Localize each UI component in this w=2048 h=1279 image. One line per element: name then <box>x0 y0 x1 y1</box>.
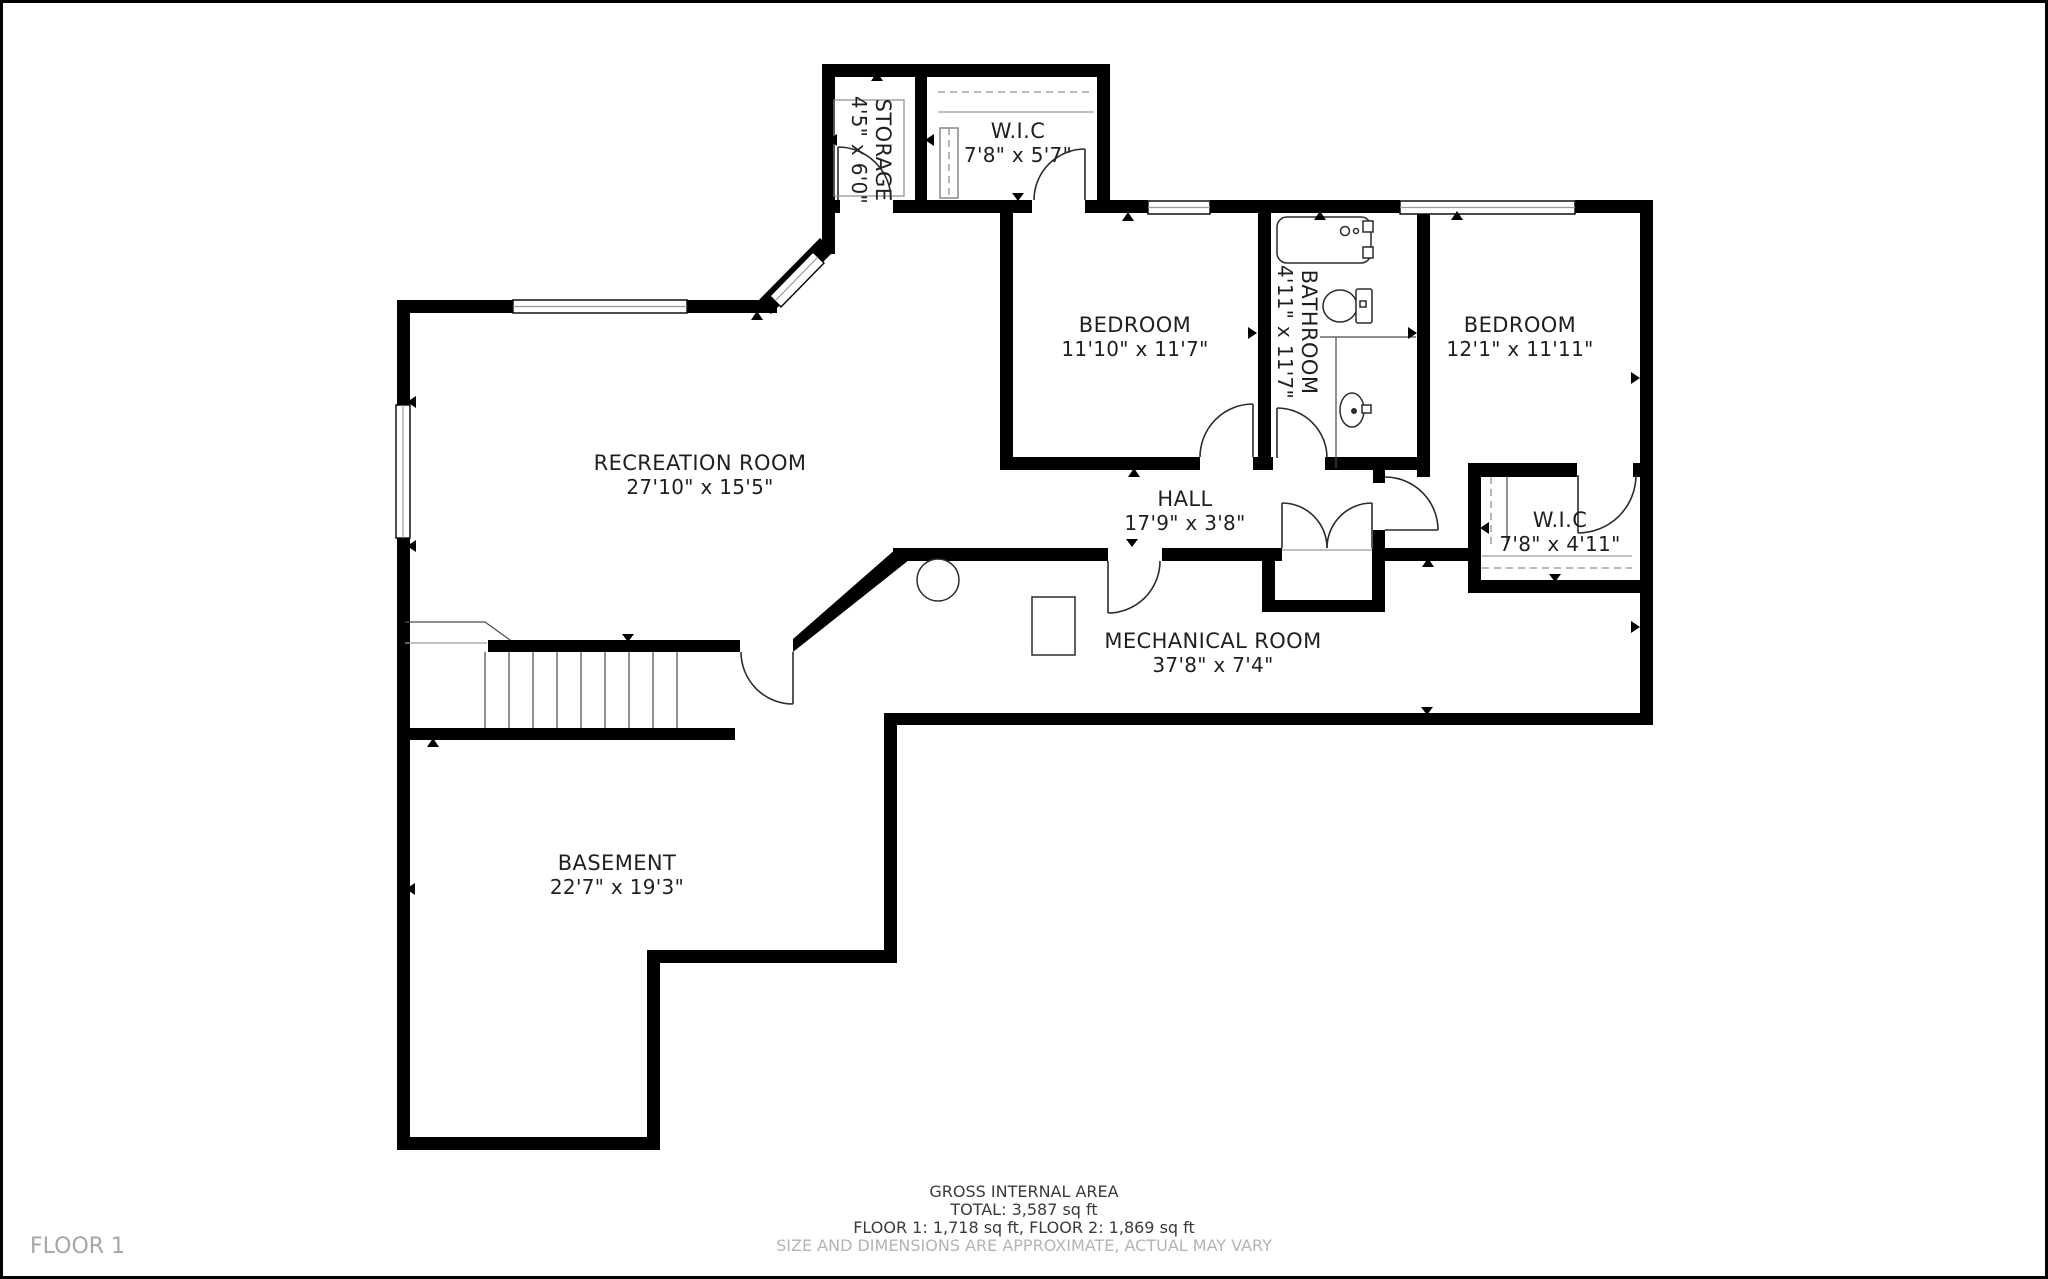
room-label-mechanical: MECHANICAL ROOM 37'8" x 7'4" <box>1104 629 1321 677</box>
wic-upper-cabinet <box>940 128 958 198</box>
wic-upper-name: W.I.C <box>991 119 1046 143</box>
room-label-bedroom2: BEDROOM 12'1" x 11'11" <box>1446 313 1593 361</box>
room-label-wic-upper: W.I.C 7'8" x 5'7" <box>964 119 1072 167</box>
double-door-hall <box>1282 503 1372 550</box>
hall-dims: 17'9" x 3'8" <box>1124 511 1245 535</box>
footer-total: TOTAL: 3,587 sq ft <box>949 1200 1097 1219</box>
bathtub <box>1277 217 1373 263</box>
wic-lower-dims: 7'8" x 4'11" <box>1499 532 1620 556</box>
door-bedroom1 <box>1200 404 1253 457</box>
doors <box>741 147 1636 704</box>
bedroom1-name: BEDROOM <box>1079 313 1191 337</box>
footer: GROSS INTERNAL AREA TOTAL: 3,587 sq ft F… <box>776 1182 1272 1255</box>
hall-name: HALL <box>1157 487 1212 511</box>
toilet <box>1323 289 1372 323</box>
windows <box>396 201 1575 538</box>
bathroom-vanity-sink <box>1320 337 1416 468</box>
water-heater <box>917 559 959 601</box>
room-label-hall: HALL 17'9" x 3'8" <box>1124 487 1245 535</box>
floor-plan-page: STORAGE 4'5" x 6'0" W.I.C 7'8" x 5'7" BE… <box>0 0 2048 1279</box>
room-label-recreation: RECREATION ROOM 27'10" x 15'5" <box>594 451 807 499</box>
room-label-wic-lower: W.I.C 7'8" x 4'11" <box>1499 508 1620 556</box>
fixtures <box>917 217 1416 655</box>
window-recreation-left <box>396 405 410 538</box>
furnace <box>1032 597 1075 655</box>
door-hall-to-corridor <box>1385 477 1438 530</box>
room-label-storage: STORAGE 4'5" x 6'0" <box>847 96 895 204</box>
stairs-basement <box>405 622 677 728</box>
bathroom-name: BATHROOM <box>1297 270 1321 395</box>
room-label-basement: BASEMENT 22'7" x 19'3" <box>550 851 684 899</box>
window-diagonal <box>770 252 824 307</box>
storage-name: STORAGE <box>871 99 895 202</box>
footer-floors: FLOOR 1: 1,718 sq ft, FLOOR 2: 1,869 sq … <box>853 1218 1195 1237</box>
wic-upper-dims: 7'8" x 5'7" <box>964 143 1072 167</box>
recreation-dims: 27'10" x 15'5" <box>626 475 773 499</box>
door-recreation-to-basement <box>741 652 793 704</box>
storage-dims: 4'5" x 6'0" <box>847 96 871 204</box>
window-recreation-top <box>513 300 687 313</box>
room-label-bedroom1: BEDROOM 11'10" x 11'7" <box>1061 313 1208 361</box>
dimension-ticks <box>406 72 1640 895</box>
window-bedroom2 <box>1400 201 1575 214</box>
door-hall-to-mechanical <box>1108 561 1160 613</box>
window-bedroom1 <box>1148 201 1210 214</box>
mechanical-name: MECHANICAL ROOM <box>1104 629 1321 653</box>
image-border <box>2 2 2047 1278</box>
wic-lower-name: W.I.C <box>1533 508 1588 532</box>
footer-disclaimer: SIZE AND DIMENSIONS ARE APPROXIMATE, ACT… <box>776 1236 1272 1255</box>
bedroom2-name: BEDROOM <box>1464 313 1576 337</box>
basement-dims: 22'7" x 19'3" <box>550 875 684 899</box>
recreation-name: RECREATION ROOM <box>594 451 807 475</box>
bedroom1-dims: 11'10" x 11'7" <box>1061 337 1208 361</box>
floor-plan-canvas: STORAGE 4'5" x 6'0" W.I.C 7'8" x 5'7" BE… <box>0 0 2048 1279</box>
bathroom-dims: 4'11" x 11'7" <box>1273 265 1297 399</box>
room-label-bathroom: BATHROOM 4'11" x 11'7" <box>1273 265 1321 399</box>
floor-tag: FLOOR 1 <box>30 1234 125 1259</box>
footer-gross-area: GROSS INTERNAL AREA <box>929 1182 1118 1201</box>
basement-name: BASEMENT <box>558 851 677 875</box>
walls <box>397 64 1653 1150</box>
mechanical-dims: 37'8" x 7'4" <box>1152 653 1273 677</box>
bedroom2-dims: 12'1" x 11'11" <box>1446 337 1593 361</box>
door-bathroom <box>1277 408 1327 458</box>
